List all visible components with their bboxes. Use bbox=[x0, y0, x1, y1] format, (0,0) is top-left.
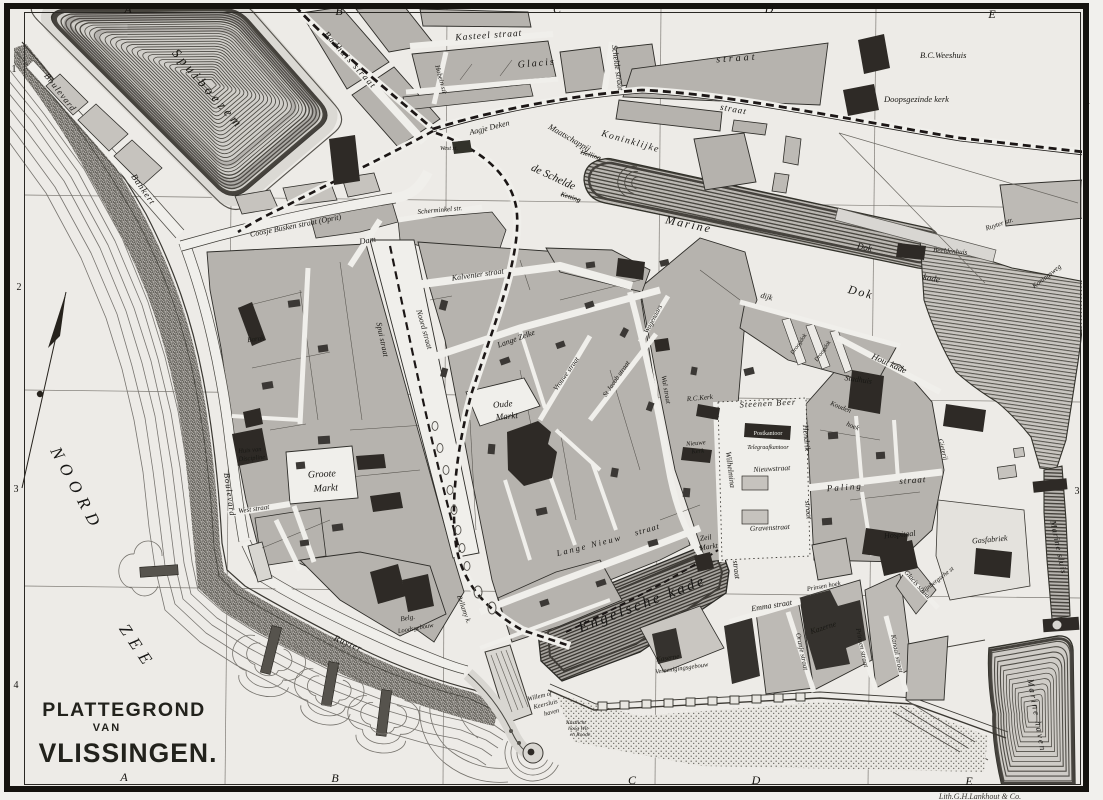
svg-text:3: 3 bbox=[1075, 486, 1080, 497]
svg-text:B.C.Weeshuis: B.C.Weeshuis bbox=[920, 50, 967, 60]
svg-text:Markt: Markt bbox=[494, 410, 518, 422]
svg-text:Doopsgezinde kerk: Doopsgezinde kerk bbox=[883, 94, 949, 104]
svg-text:E: E bbox=[987, 7, 996, 21]
svg-text:1: 1 bbox=[12, 64, 17, 75]
svg-text:C: C bbox=[628, 773, 637, 787]
svg-text:D: D bbox=[764, 2, 774, 16]
svg-text:Oude: Oude bbox=[493, 398, 513, 410]
svg-text:E: E bbox=[964, 774, 973, 788]
svg-text:B: B bbox=[331, 771, 339, 785]
svg-text:A: A bbox=[119, 770, 128, 784]
svg-text:Groote: Groote bbox=[308, 468, 337, 480]
svg-text:VLISSINGEN.: VLISSINGEN. bbox=[39, 738, 218, 768]
svg-text:Telegraafkantoor: Telegraafkantoor bbox=[747, 444, 789, 451]
svg-text:2: 2 bbox=[17, 282, 22, 293]
svg-text:VAN: VAN bbox=[93, 722, 121, 734]
svg-text:2: 2 bbox=[1084, 291, 1089, 302]
svg-text:Markt: Markt bbox=[312, 482, 338, 494]
svg-text:B: B bbox=[335, 4, 343, 18]
svg-text:West st.: West st. bbox=[440, 146, 458, 152]
svg-text:A: A bbox=[123, 2, 132, 16]
svg-text:straat: straat bbox=[803, 500, 814, 520]
svg-text:Kerk: Kerk bbox=[690, 447, 704, 455]
svg-text:4: 4 bbox=[14, 680, 19, 691]
svg-text:Postkantoor: Postkantoor bbox=[754, 431, 783, 437]
svg-text:C: C bbox=[553, 2, 562, 16]
svg-text:1: 1 bbox=[1086, 96, 1091, 107]
svg-text:D: D bbox=[751, 773, 761, 787]
svg-text:en Roode: en Roode bbox=[570, 732, 591, 738]
svg-text:straat: straat bbox=[899, 474, 927, 486]
svg-text:PLATTEGROND: PLATTEGROND bbox=[42, 699, 205, 721]
svg-text:Lith.G.H.Lankhout & Co.: Lith.G.H.Lankhout & Co. bbox=[938, 792, 1021, 800]
svg-text:3: 3 bbox=[14, 484, 19, 495]
